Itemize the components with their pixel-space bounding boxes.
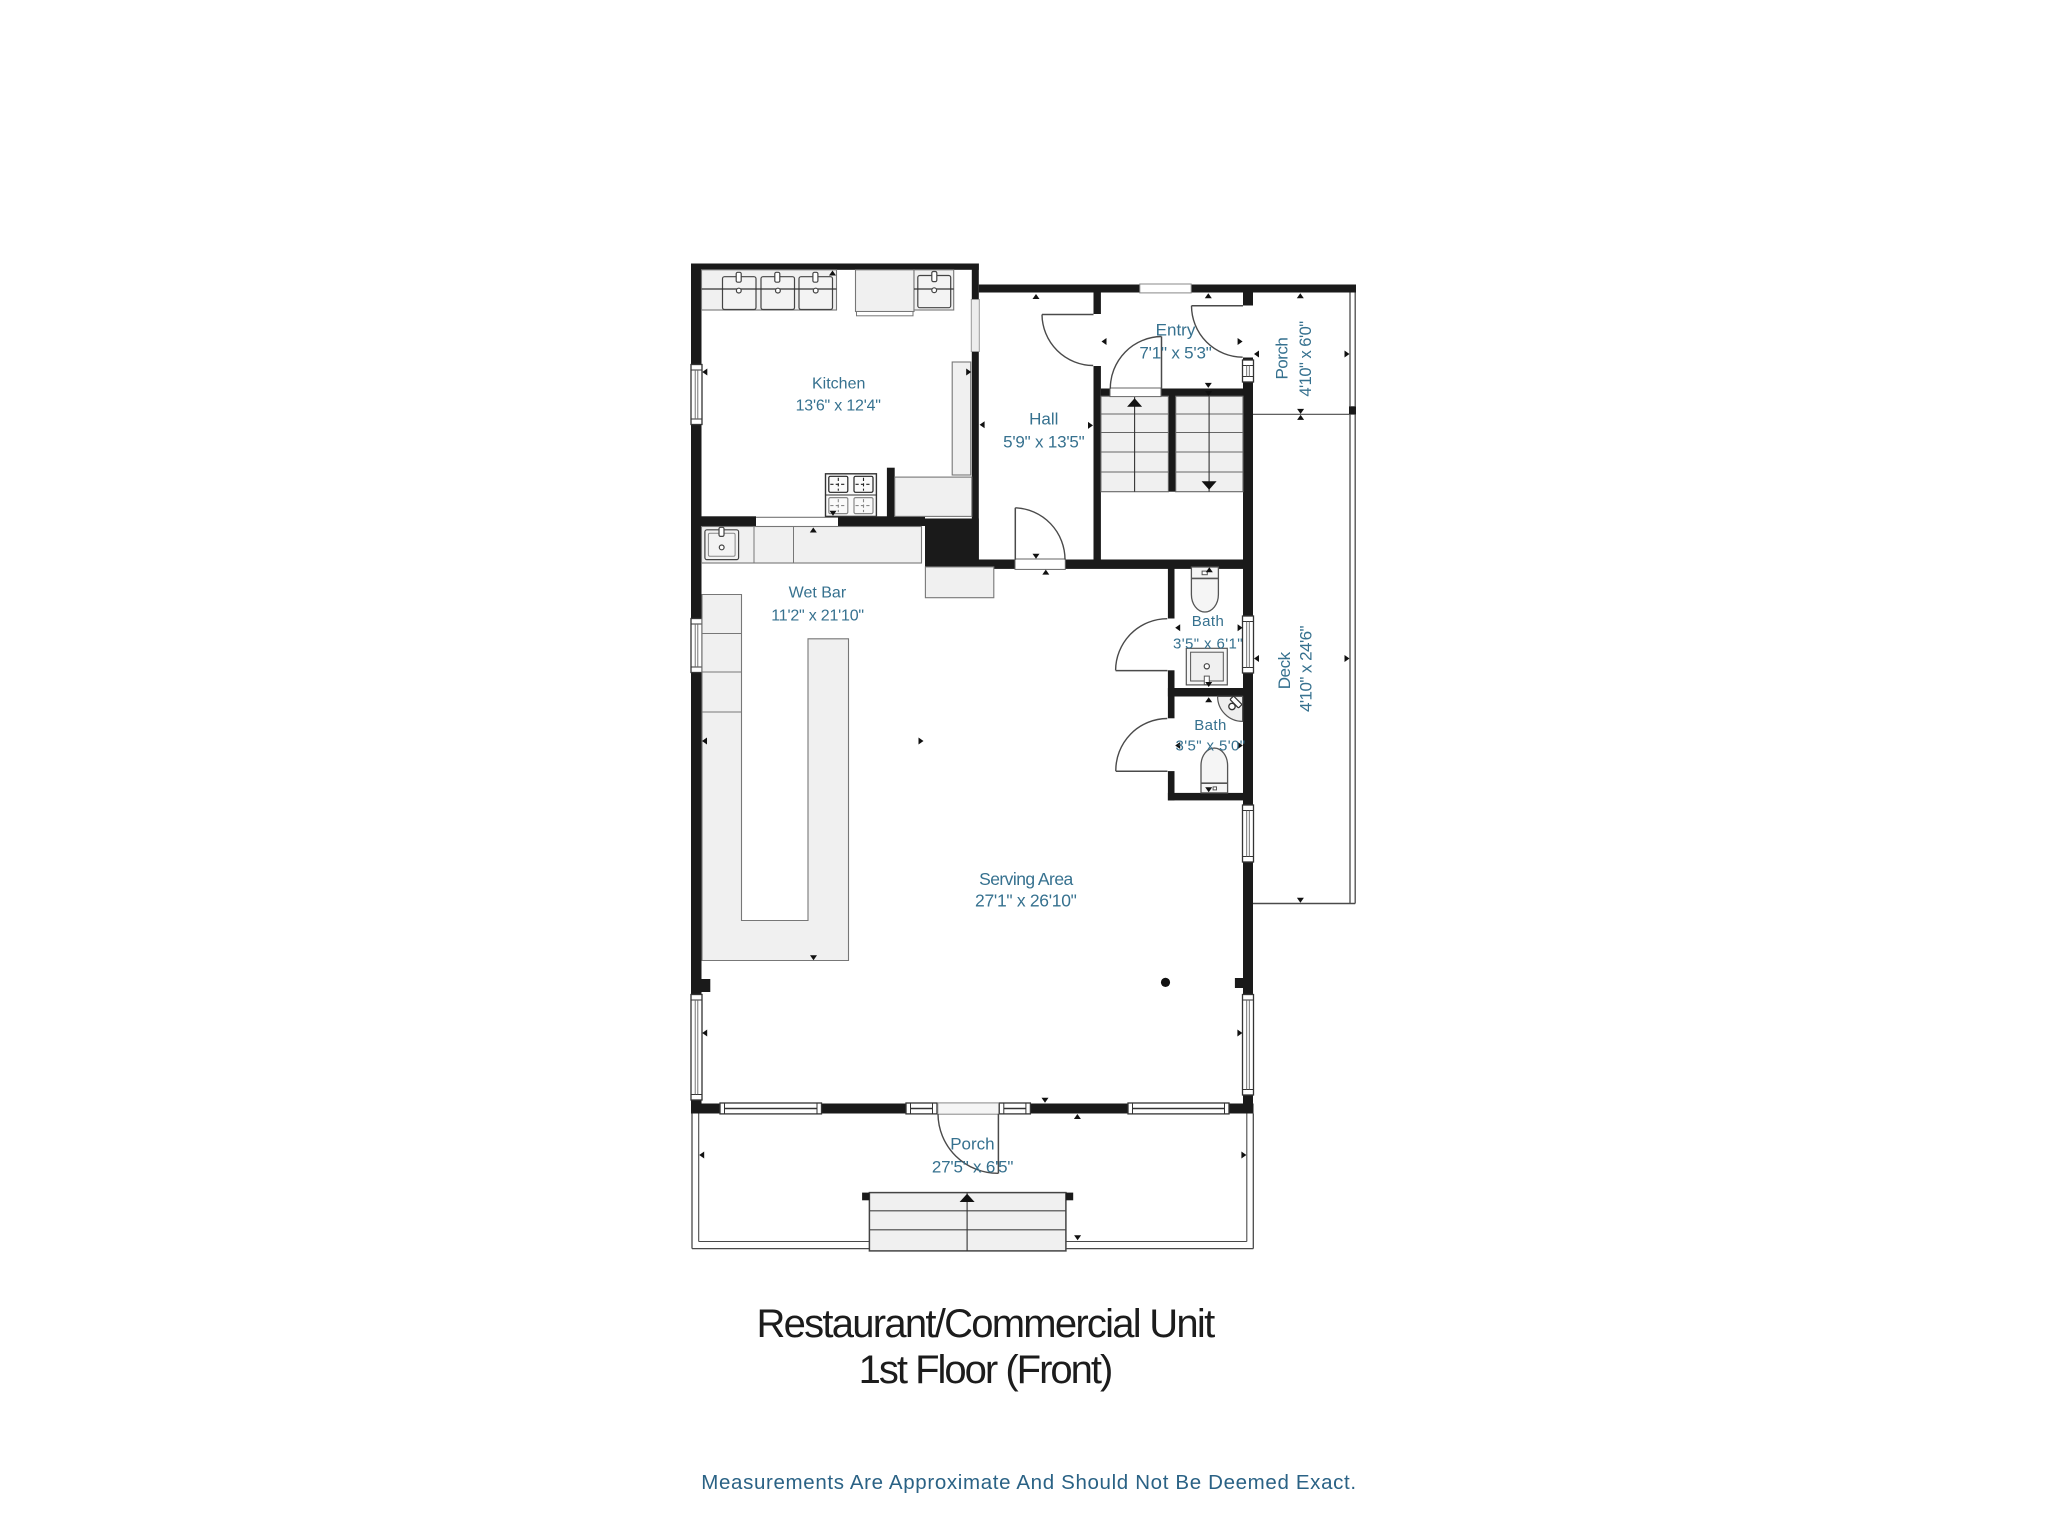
svg-text:1st Floor (Front): 1st Floor (Front): [859, 1348, 1112, 1392]
svg-text:4'10" x 24'6": 4'10" x 24'6": [1297, 625, 1316, 712]
svg-text:5'9" x 13'5": 5'9" x 13'5": [1003, 432, 1085, 451]
svg-text:Serving Area: Serving Area: [979, 869, 1073, 889]
svg-text:27'1" x 26'10": 27'1" x 26'10": [975, 891, 1077, 911]
svg-text:13'6" x 12'4": 13'6" x 12'4": [796, 397, 881, 414]
svg-text:3'5" x 5'0": 3'5" x 5'0": [1176, 738, 1246, 755]
svg-text:11'2" x 21'10": 11'2" x 21'10": [771, 608, 864, 625]
svg-text:Kitchen: Kitchen: [812, 376, 865, 393]
svg-text:Entry: Entry: [1156, 321, 1196, 340]
svg-text:7'1" x 5'3": 7'1" x 5'3": [1139, 343, 1211, 362]
svg-text:Restaurant/Commercial Unit: Restaurant/Commercial Unit: [757, 1302, 1216, 1346]
svg-text:Measurements Are Approximate A: Measurements Are Approximate And Should …: [701, 1471, 1356, 1494]
svg-text:27'5" x 6'5": 27'5" x 6'5": [932, 1158, 1014, 1177]
svg-text:4'10" x 6'0": 4'10" x 6'0": [1297, 321, 1315, 397]
svg-text:Porch: Porch: [1273, 338, 1292, 380]
svg-text:3'5" x 6'1": 3'5" x 6'1": [1173, 635, 1243, 652]
svg-text:Bath: Bath: [1194, 717, 1226, 734]
svg-text:Porch: Porch: [950, 1135, 994, 1154]
svg-text:Wet Bar: Wet Bar: [789, 585, 847, 602]
svg-text:Hall: Hall: [1029, 409, 1058, 428]
svg-text:Bath: Bath: [1192, 613, 1224, 630]
svg-text:Deck: Deck: [1275, 651, 1294, 689]
